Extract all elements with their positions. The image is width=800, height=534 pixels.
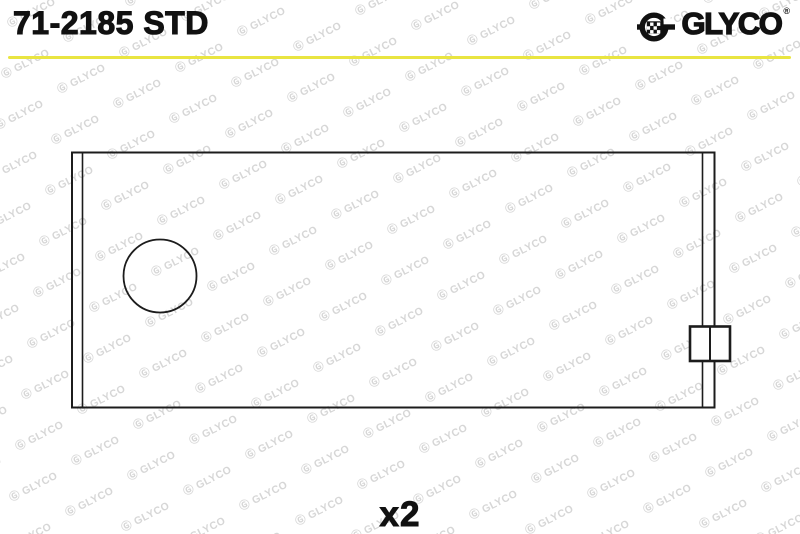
watermark-text: Ⓖ GLYCO [328,186,382,223]
watermark-text: Ⓖ GLYCO [596,363,650,400]
watermark-text: Ⓖ GLYCO [296,0,350,4]
watermark-text: Ⓖ GLYCO [0,45,52,82]
watermark-text: Ⓖ GLYCO [242,426,296,463]
watermark-text: Ⓖ GLYCO [552,246,606,283]
watermark-text: Ⓖ GLYCO [558,195,612,232]
watermark-text: Ⓖ GLYCO [708,393,762,430]
watermark-text: Ⓖ GLYCO [0,402,10,439]
watermark-text: Ⓖ GLYCO [30,264,84,301]
watermark-text: Ⓖ GLYCO [254,324,308,361]
watermark-text: Ⓖ GLYCO [526,0,580,13]
watermark-text: Ⓖ GLYCO [440,216,494,253]
watermark-text: Ⓖ GLYCO [528,450,582,487]
watermark-text: Ⓖ GLYCO [166,90,220,127]
watermark-text: Ⓖ GLYCO [676,174,730,211]
watermark-text: Ⓖ GLYCO [322,237,376,274]
watermark-text: Ⓖ GLYCO [434,267,488,304]
watermark-text: Ⓖ GLYCO [346,33,400,70]
watermark-text: Ⓖ GLYCO [652,378,706,415]
watermark-text: Ⓖ GLYCO [378,252,432,289]
watermark-text: Ⓖ GLYCO [646,429,700,466]
watermark-text: Ⓖ GLYCO [416,420,470,457]
brand-logo: GLYCO ® [637,10,790,43]
watermark-text: Ⓖ GLYCO [278,120,332,157]
watermark-text: Ⓖ GLYCO [98,177,152,214]
watermark-text: Ⓖ GLYCO [92,228,146,265]
watermark-text: Ⓖ GLYCO [80,330,134,367]
watermark-text: Ⓖ GLYCO [68,432,122,469]
watermark-text: Ⓖ GLYCO [248,375,302,412]
watermark-text: Ⓖ GLYCO [24,315,78,352]
watermark-text: Ⓖ GLYCO [658,327,712,364]
watermark-text: Ⓖ GLYCO [744,87,798,124]
watermark-text: Ⓖ GLYCO [148,243,202,280]
watermark-text: Ⓖ GLYCO [260,273,314,310]
watermark-text: Ⓖ GLYCO [74,381,128,418]
catalog-image: Ⓖ GLYCOⒼ GLYCOⒼ GLYCOⒼ GLYCOⒼ GLYCOⒼ GLY… [0,0,800,534]
watermark-text: Ⓖ GLYCO [788,204,800,241]
watermark-text: Ⓖ GLYCO [502,180,556,217]
watermark-text: Ⓖ GLYCO [782,255,800,292]
watermark-text: Ⓖ GLYCO [608,261,662,298]
watermark-text: Ⓖ GLYCO [396,99,450,136]
watermark-text: Ⓖ GLYCO [452,114,506,151]
watermark-text: Ⓖ GLYCO [508,129,562,166]
watermark-text: Ⓖ GLYCO [18,366,72,403]
watermark-text: Ⓖ GLYCO [366,354,420,391]
watermark-text: Ⓖ GLYCO [228,54,282,91]
watermark-text: Ⓖ GLYCO [726,240,780,277]
watermark-text: Ⓖ GLYCO [776,306,800,343]
watermark-text: Ⓖ GLYCO [110,75,164,112]
watermark-text: Ⓖ GLYCO [738,138,792,175]
watermark-text: Ⓖ GLYCO [570,93,624,130]
watermark-text: Ⓖ GLYCO [160,141,214,178]
watermark-text: Ⓖ GLYCO [794,153,800,190]
watermark-text: Ⓖ GLYCO [458,63,512,100]
watermark-text: Ⓖ GLYCO [0,96,46,133]
watermark-text: Ⓖ GLYCO [304,390,358,427]
glyco-emblem-icon [637,12,675,43]
watermark-text: Ⓖ GLYCO [402,48,456,85]
watermark-text: Ⓖ GLYCO [540,348,594,385]
watermark-text: Ⓖ GLYCO [352,0,406,19]
watermark-text: Ⓖ GLYCO [130,396,184,433]
watermark-text: Ⓖ GLYCO [222,105,276,142]
watermark-text: Ⓖ GLYCO [42,162,96,199]
watermark-text: Ⓖ GLYCO [514,78,568,115]
watermark-text: Ⓖ GLYCO [142,294,196,331]
quantity-label: x2 [0,497,800,532]
watermark-text: Ⓖ GLYCO [0,453,4,490]
watermark-text: Ⓖ GLYCO [472,435,526,472]
watermark-text: Ⓖ GLYCO [272,171,326,208]
checker-pattern [647,21,664,33]
watermark-text: Ⓖ GLYCO [266,222,320,259]
watermark-text: Ⓖ GLYCO [764,408,800,445]
watermark-text: Ⓖ GLYCO [682,123,736,160]
watermark-text: Ⓖ GLYCO [602,312,656,349]
watermark-text: Ⓖ GLYCO [216,156,270,193]
watermark-text: Ⓖ GLYCO [154,192,208,229]
watermark-text: Ⓖ GLYCO [534,399,588,436]
watermark-text: Ⓖ GLYCO [86,279,140,316]
watermark-text: Ⓖ GLYCO [48,111,102,148]
watermark-text: Ⓖ GLYCO [496,231,550,268]
watermark-text: Ⓖ GLYCO [180,462,234,499]
watermark-text: Ⓖ GLYCO [390,150,444,187]
watermark-text: Ⓖ GLYCO [136,345,190,382]
watermark-text: Ⓖ GLYCO [720,291,774,328]
watermark-text: Ⓖ GLYCO [204,258,258,295]
watermark-text: Ⓖ GLYCO [316,288,370,325]
watermark-text: Ⓖ GLYCO [0,351,16,388]
watermark-text: Ⓖ GLYCO [490,282,544,319]
watermark-text: Ⓖ GLYCO [0,198,34,235]
watermark-text: Ⓖ GLYCO [422,369,476,406]
watermark-text: Ⓖ GLYCO [626,108,680,145]
watermark-text: Ⓖ GLYCO [192,360,246,397]
watermark-text: Ⓖ GLYCO [632,57,686,94]
part-number: 71-2185 STD [13,7,209,39]
watermark-text: Ⓖ GLYCO [0,300,22,337]
watermark-text: Ⓖ GLYCO [670,225,724,262]
watermark-text: Ⓖ GLYCO [446,165,500,202]
watermark-text: Ⓖ GLYCO [590,414,644,451]
watermark-layer: Ⓖ GLYCOⒼ GLYCOⒼ GLYCOⒼ GLYCOⒼ GLYCOⒼ GLY… [0,0,800,534]
watermark-text: Ⓖ GLYCO [620,159,674,196]
watermark-text: Ⓖ GLYCO [770,357,800,394]
watermark-text: Ⓖ GLYCO [484,333,538,370]
registered-trademark: ® [783,7,790,16]
watermark-text: Ⓖ GLYCO [12,417,66,454]
watermark-text: Ⓖ GLYCO [702,444,756,481]
watermark-text: Ⓖ GLYCO [372,303,426,340]
watermark-text: Ⓖ GLYCO [310,339,364,376]
watermark-text: Ⓖ GLYCO [576,42,630,79]
watermark-text: Ⓖ GLYCO [478,384,532,421]
watermark-text: Ⓖ GLYCO [0,0,2,16]
watermark-text: Ⓖ GLYCO [340,84,394,121]
watermark-text: Ⓖ GLYCO [614,210,668,247]
watermark-text: Ⓖ GLYCO [104,126,158,163]
watermark-text: Ⓖ GLYCO [0,147,40,184]
watermark-text: Ⓖ GLYCO [464,12,518,49]
watermark-text: Ⓖ GLYCO [234,3,288,40]
watermark-text: Ⓖ GLYCO [334,135,388,172]
watermark-text: Ⓖ GLYCO [408,0,462,34]
watermark-text: Ⓖ GLYCO [714,342,768,379]
watermark-text: Ⓖ GLYCO [664,276,718,313]
watermark-text: Ⓖ GLYCO [428,318,482,355]
watermark-text: Ⓖ GLYCO [546,297,600,334]
brand-name: GLYCO [681,10,781,38]
watermark-text: Ⓖ GLYCO [688,72,742,109]
watermark-text: Ⓖ GLYCO [290,18,344,55]
watermark-text: Ⓖ GLYCO [210,207,264,244]
watermark-text: Ⓖ GLYCO [758,459,800,496]
watermark-text: Ⓖ GLYCO [582,0,636,28]
watermark-text: Ⓖ GLYCO [732,189,786,226]
watermark-text: Ⓖ GLYCO [54,60,108,97]
watermark-text: Ⓖ GLYCO [564,144,618,181]
watermark-text: Ⓖ GLYCO [198,309,252,346]
watermark-text: Ⓖ GLYCO [298,441,352,478]
watermark-text: Ⓖ GLYCO [186,411,240,448]
watermark-text: Ⓖ GLYCO [124,447,178,484]
watermark-text: Ⓖ GLYCO [284,69,338,106]
watermark-text: Ⓖ GLYCO [354,456,408,493]
watermark-text: Ⓖ GLYCO [36,213,90,250]
watermark-text: Ⓖ GLYCO [384,201,438,238]
yellow-divider [8,56,791,59]
watermark-text: Ⓖ GLYCO [360,405,414,442]
watermark-text: Ⓖ GLYCO [0,249,28,286]
